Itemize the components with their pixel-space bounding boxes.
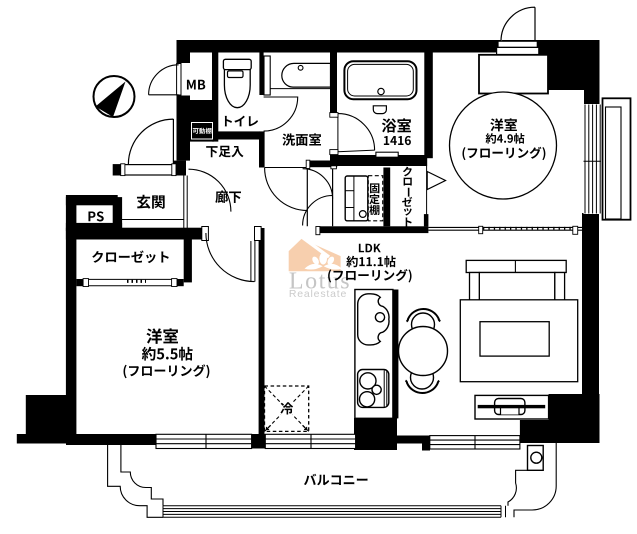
svg-text:Realestate: Realestate xyxy=(289,288,347,300)
